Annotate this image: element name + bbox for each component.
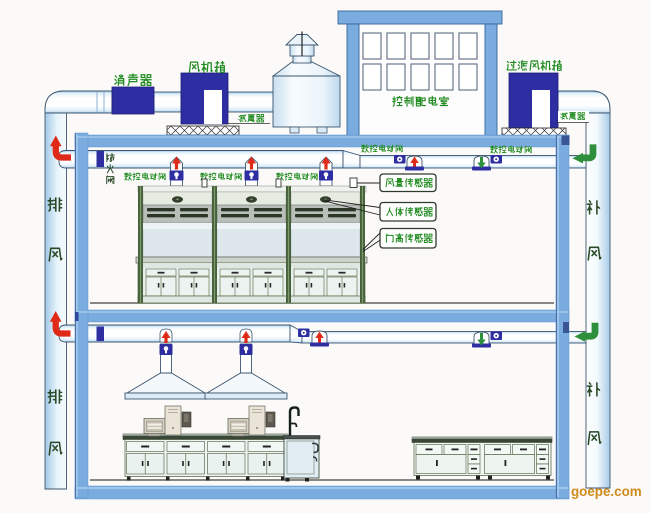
svg-text:goepe.com: goepe.com	[571, 484, 642, 499]
